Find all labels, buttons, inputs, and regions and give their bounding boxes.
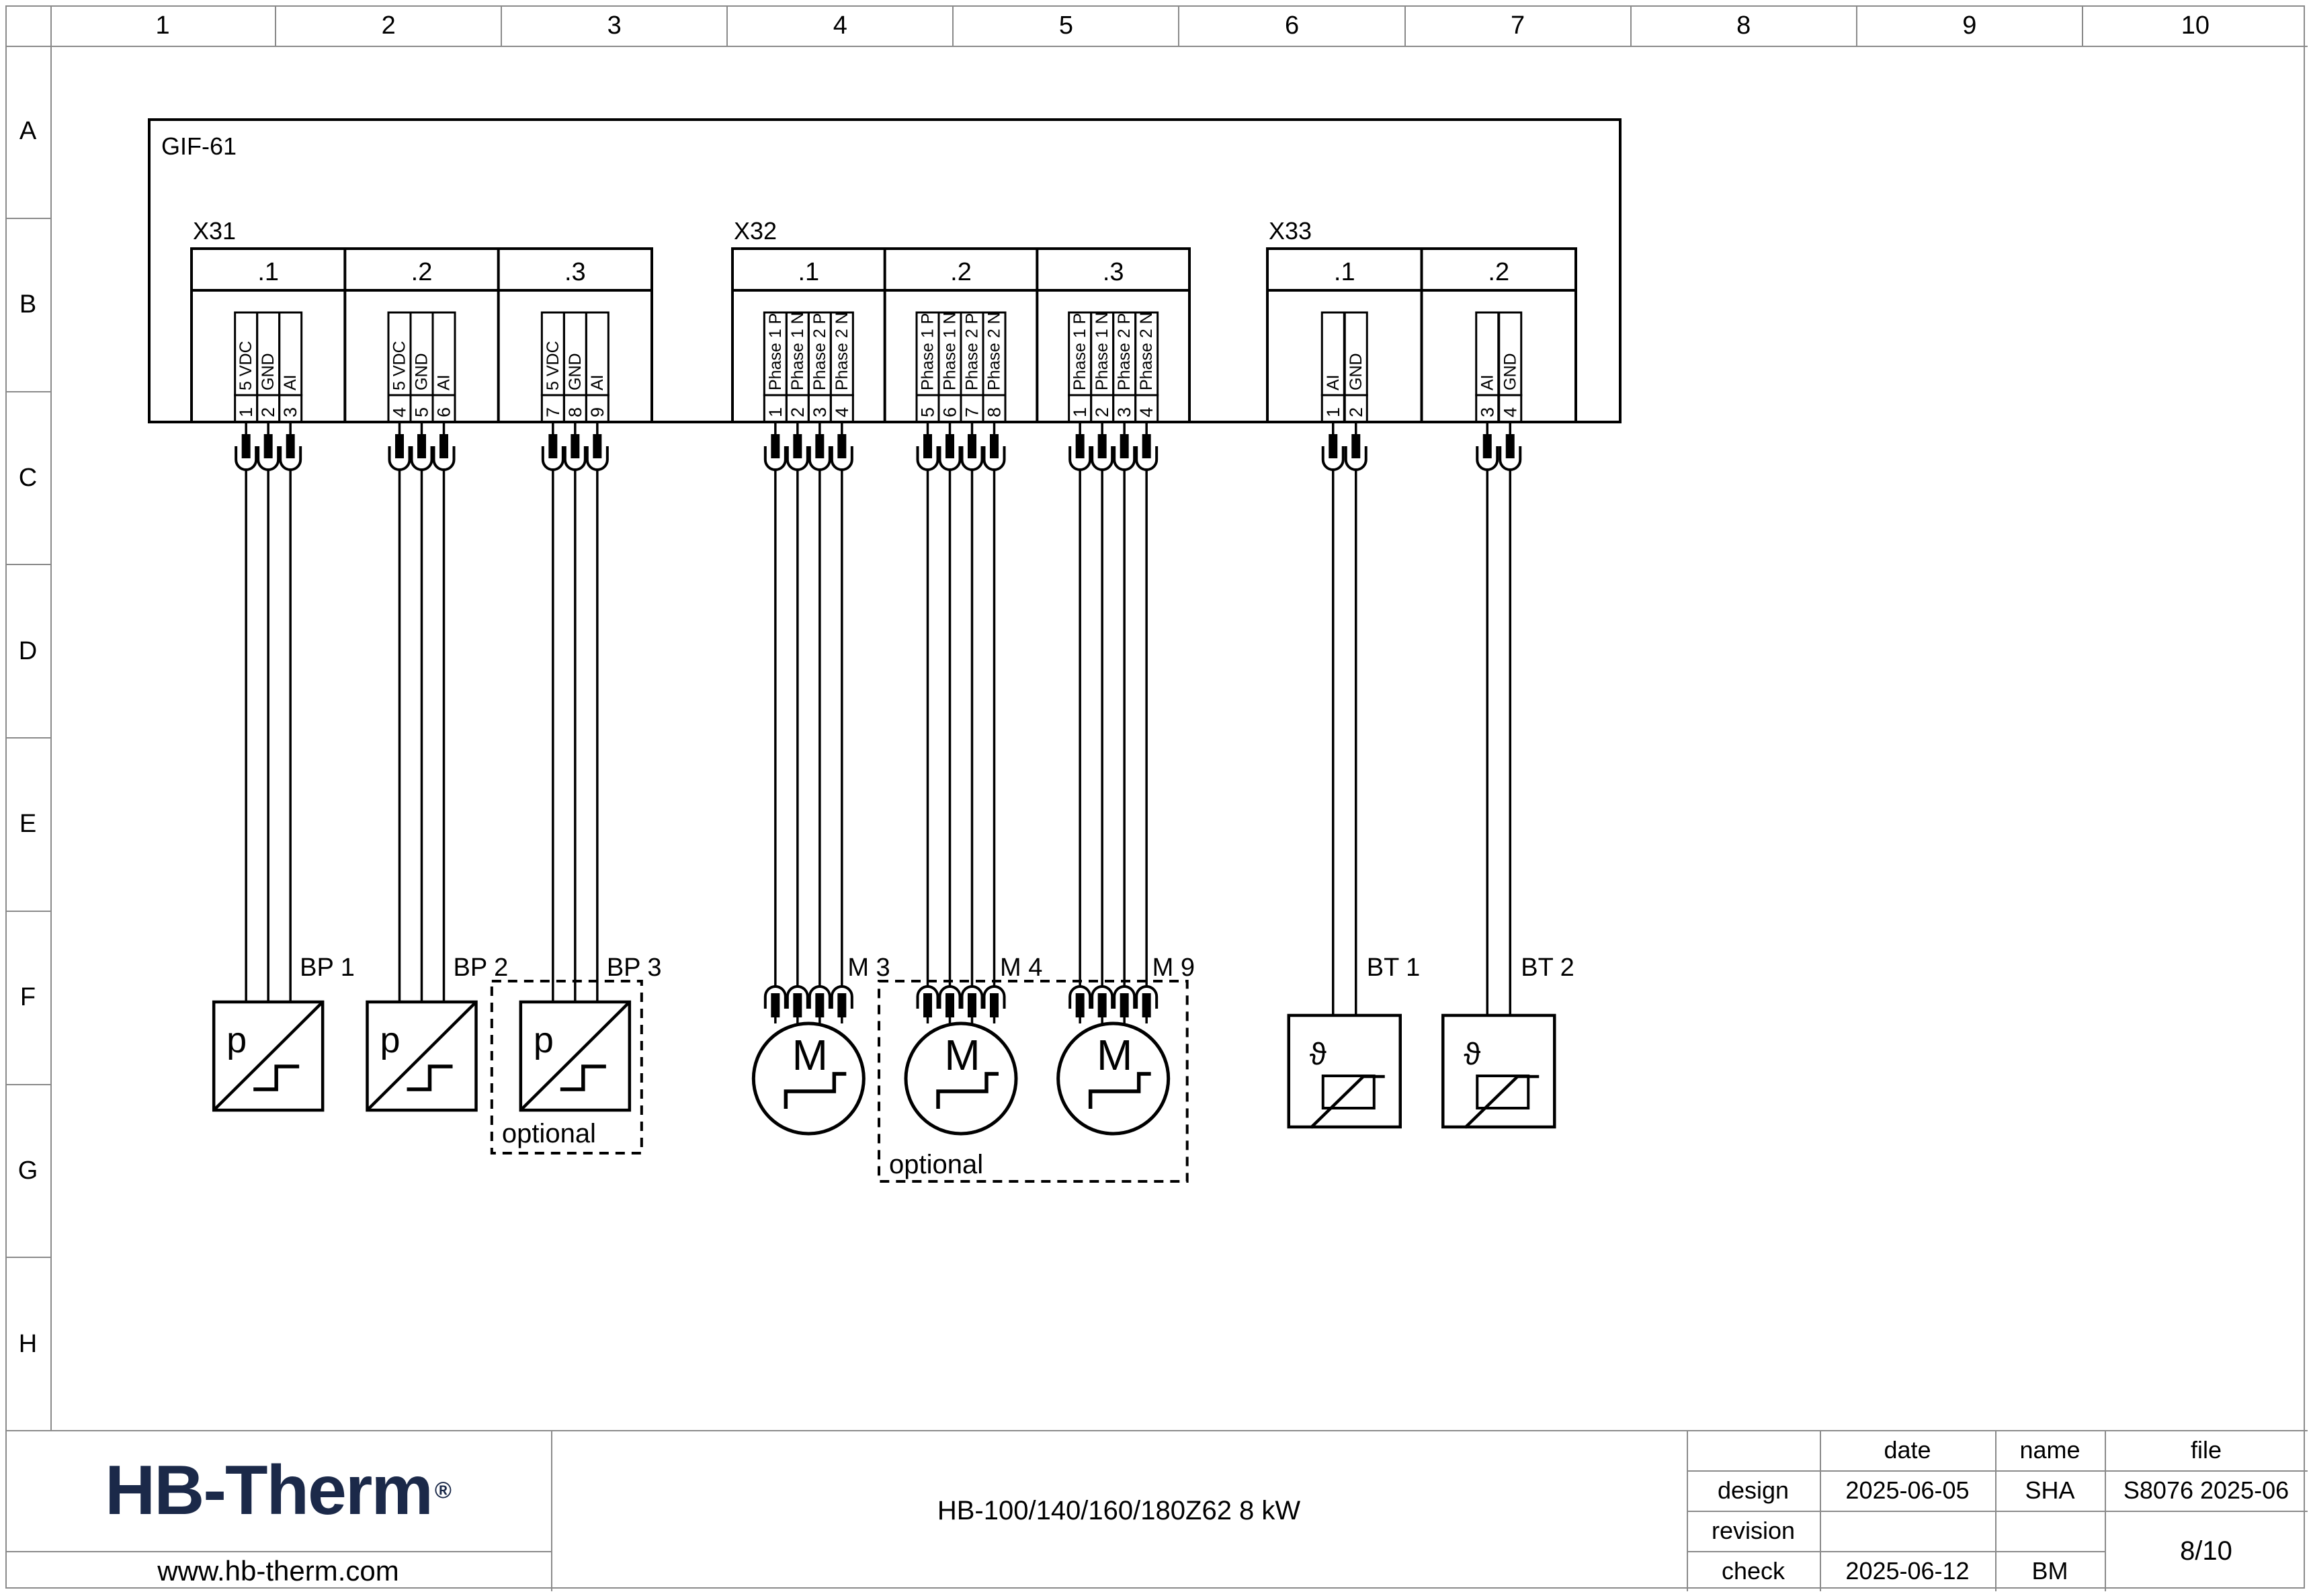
plug-pin [571, 434, 579, 458]
wiring-diagram: GIF-61X31.15 VDC1GND2AI3pBP 1.25 VDC4GND… [0, 0, 2313, 1596]
group-label: .2 [1488, 258, 1509, 286]
plug-pin [1142, 434, 1151, 458]
logo-text: HB-Therm [105, 1456, 432, 1525]
terminal-signal-label: Phase 1 P [919, 313, 937, 390]
terminal-signal-label: Phase 2 N [985, 312, 1004, 390]
plug-pin [771, 434, 780, 458]
pin-number: 4 [1500, 407, 1520, 417]
tb-header-name: name [1995, 1430, 2105, 1470]
pin-number: 1 [765, 407, 786, 417]
pin-number: 2 [1092, 407, 1112, 417]
plug-pin [264, 434, 273, 458]
terminal-signal-label: AI [588, 374, 607, 390]
terminal-signal-label: Phase 1 N [941, 312, 960, 390]
terminal-signal-label: GND [566, 353, 585, 390]
plug-pin [1483, 434, 1492, 458]
pin-number: 7 [962, 407, 982, 417]
tb-header-date: date [1820, 1430, 1995, 1470]
device-tag: BP 1 [300, 954, 355, 982]
plug-pin [1142, 993, 1151, 1017]
motor-symbol: M [944, 1031, 980, 1079]
device-bt1: ϑBT 1 [1289, 954, 1421, 1128]
temperature-sensor-box [1443, 1015, 1554, 1127]
step-signal-icon [253, 1066, 299, 1089]
pin-number: 2 [258, 407, 278, 417]
tb-check-name: BM [1995, 1551, 2105, 1591]
device-tag: BT 2 [1521, 954, 1574, 982]
terminal-signal-label: GND [259, 353, 278, 390]
enclosure-label: GIF-61 [161, 132, 237, 160]
plug-pin [945, 993, 954, 1017]
device-tag: BP 3 [607, 954, 662, 982]
plug-pin [1076, 993, 1085, 1017]
tb-design-file: S8076 2025-06 [2105, 1470, 2308, 1511]
plug-pin [1076, 434, 1085, 458]
tb-design-name: SHA [1995, 1470, 2105, 1511]
tb-row-revision-label: revision [1687, 1511, 1820, 1551]
pin-number: 6 [434, 407, 454, 417]
terminal-signal-label: AI [1478, 374, 1497, 390]
plug-pin [923, 434, 932, 458]
device-m3: MM 3 [753, 954, 890, 1134]
pin-number: 4 [390, 407, 410, 417]
plug-pin [968, 434, 976, 458]
plug-pin [548, 434, 557, 458]
temperature-sensor-box [1289, 1015, 1400, 1127]
plug-pin [990, 434, 999, 458]
pressure-symbol: p [380, 1020, 401, 1060]
tb-design-date: 2025-06-05 [1820, 1470, 1995, 1511]
pin-number: 1 [1323, 407, 1343, 417]
plug-pin [286, 434, 295, 458]
terminal-signal-label: 5 VDC [390, 341, 409, 390]
plug-pin [793, 993, 802, 1017]
device-tag: BT 1 [1367, 954, 1421, 982]
pressure-symbol: p [226, 1020, 247, 1060]
group-label: .3 [1103, 258, 1124, 286]
plug-pin [923, 993, 932, 1017]
group-label: .2 [411, 258, 433, 286]
pin-number: 5 [412, 407, 432, 417]
terminal-signal-label: Phase 2 P [810, 313, 829, 390]
terminal-signal-label: 5 VDC [237, 341, 255, 390]
terminal-signal-label: GND [413, 353, 431, 390]
group-label: .3 [564, 258, 586, 286]
plug-pin [417, 434, 426, 458]
plug-pin [990, 993, 999, 1017]
drawing-title: HB-100/140/160/180Z62 8 kW [551, 1430, 1687, 1591]
terminal-signal-label: 5 VDC [544, 341, 562, 390]
terminal-signal-label: Phase 2 N [833, 312, 851, 390]
terminal-signal-label: Phase 2 P [1115, 313, 1134, 390]
plug-pin [793, 434, 802, 458]
pin-number: 6 [940, 407, 960, 417]
plug-pin [837, 993, 846, 1017]
device-tag: M 9 [1152, 954, 1195, 982]
plug-pin [1120, 993, 1129, 1017]
registered-trademark: ® [435, 1478, 452, 1504]
plug-pin [439, 434, 448, 458]
theta-symbol: ϑ [1310, 1036, 1327, 1071]
pin-number: 4 [832, 407, 852, 417]
terminal-signal-label: AI [281, 374, 300, 390]
plug-pin [837, 434, 846, 458]
plug-pin [1506, 434, 1515, 458]
pin-number: 3 [280, 407, 300, 417]
terminal-signal-label: Phase 1 P [1070, 313, 1089, 390]
plug-pin [1351, 434, 1360, 458]
tb-header-file: file [2105, 1430, 2308, 1470]
pin-number: 3 [1114, 407, 1134, 417]
plug-pin [815, 434, 824, 458]
pin-number: 2 [788, 407, 808, 417]
connector-X32: X32.1Phase 1 P1Phase 1 N2Phase 2 P3Phase… [732, 217, 1195, 1134]
plug-pin [815, 993, 824, 1017]
plug-pin [395, 434, 404, 458]
pin-number: 3 [1477, 407, 1497, 417]
motor-symbol: M [792, 1031, 828, 1079]
diagram-root: GIF-61X31.15 VDC1GND2AI3pBP 1.25 VDC4GND… [149, 120, 1620, 1181]
plug-pin [1098, 993, 1107, 1017]
plug-pin [1098, 434, 1107, 458]
device-bt2: ϑBT 2 [1443, 954, 1574, 1128]
device-tag: BP 2 [454, 954, 509, 982]
theta-symbol: ϑ [1464, 1036, 1480, 1071]
device-m4: MM 4 [906, 954, 1042, 1134]
pin-number: 1 [236, 407, 256, 417]
device-tag: M 4 [1000, 954, 1042, 982]
plug-pin [945, 434, 954, 458]
schematic-sheet: 12345678910 ABCDEFGH GIF-61X31.15 VDC1GN… [0, 0, 2313, 1596]
pin-number: 8 [565, 407, 585, 417]
device-bp1: pBP 1 [214, 954, 355, 1110]
plug-pin [1120, 434, 1129, 458]
pin-number: 8 [984, 407, 1005, 417]
logo-cell: HB-Therm® [5, 1430, 551, 1551]
tb-row-design-label: design [1687, 1470, 1820, 1511]
group-label: .2 [950, 258, 972, 286]
motor-symbol: M [1097, 1031, 1132, 1079]
terminal-signal-label: AI [1324, 374, 1343, 390]
pin-number: 3 [810, 407, 830, 417]
terminal-signal-label: Phase 1 N [788, 312, 807, 390]
pressure-symbol: p [534, 1020, 554, 1060]
pin-number: 9 [587, 407, 607, 417]
optional-label: optional [889, 1150, 983, 1179]
title-block: HB-Therm® www.hb-therm.com HB-100/140/16… [5, 1430, 2308, 1591]
connector-X33: X33.1AI1GND2ϑBT 1.2AI3GND4ϑBT 2 [1267, 217, 1576, 1128]
plug-pin [968, 993, 976, 1017]
pin-number: 2 [1346, 407, 1366, 417]
pin-number: 1 [1070, 407, 1090, 417]
connector-name: X33 [1269, 217, 1312, 245]
step-signal-icon [560, 1066, 606, 1089]
page-number: 8/10 [2105, 1511, 2308, 1591]
plug-pin [593, 434, 601, 458]
terminal-signal-label: Phase 2 P [963, 313, 982, 390]
pin-number: 7 [543, 407, 563, 417]
group-label: .1 [257, 258, 279, 286]
connector-name: X31 [193, 217, 236, 245]
tb-row-check-label: check [1687, 1551, 1820, 1591]
website: www.hb-therm.com [5, 1551, 551, 1591]
plug-pin [771, 993, 780, 1017]
plug-pin [242, 434, 251, 458]
terminal-signal-label: Phase 1 P [766, 313, 785, 390]
device-bp2: pBP 2 [368, 954, 509, 1110]
terminal-signal-label: GND [1347, 353, 1365, 390]
terminal-signal-label: Phase 2 N [1137, 312, 1156, 390]
plug-pin [1329, 434, 1337, 458]
pin-number: 4 [1136, 407, 1156, 417]
pin-number: 5 [918, 407, 938, 417]
optional-label: optional [502, 1119, 596, 1148]
device-tag: M 3 [847, 954, 890, 982]
tb-check-date: 2025-06-12 [1820, 1551, 1995, 1591]
terminal-signal-label: Phase 1 N [1093, 312, 1111, 390]
group-label: .1 [798, 258, 819, 286]
terminal-signal-label: GND [1501, 353, 1519, 390]
connector-X31: X31.15 VDC1GND2AI3pBP 1.25 VDC4GND5AI6pB… [192, 217, 662, 1110]
connector-name: X32 [734, 217, 777, 245]
step-signal-icon [407, 1066, 453, 1089]
terminal-signal-label: AI [435, 374, 454, 390]
group-label: .1 [1334, 258, 1355, 286]
